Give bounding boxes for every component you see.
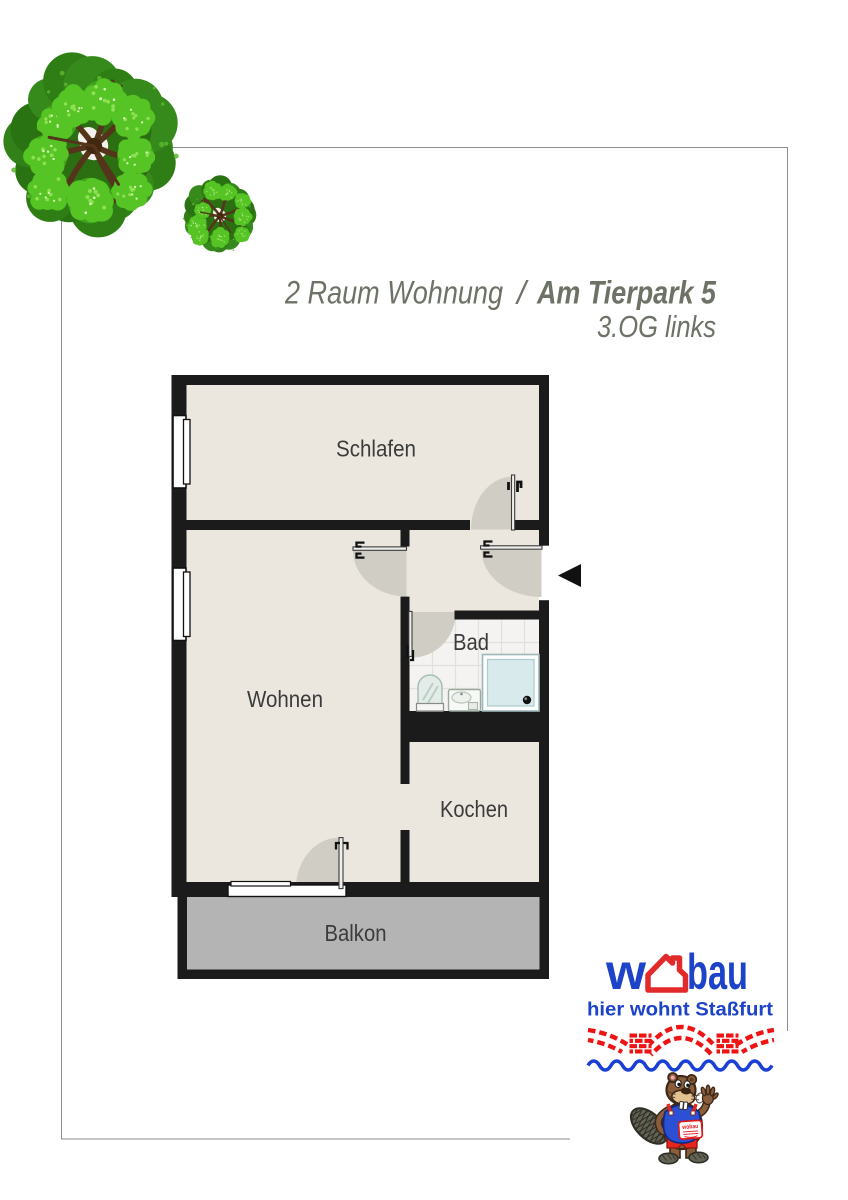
svg-text:/: /: [515, 275, 529, 311]
svg-text:Am Tierpark 5: Am Tierpark 5: [536, 275, 717, 311]
svg-text:bau: bau: [687, 944, 748, 1000]
svg-text:Wohnen: Wohnen: [247, 686, 323, 712]
svg-text:3.OG links: 3.OG links: [597, 309, 716, 344]
svg-text:Kochen: Kochen: [440, 796, 508, 822]
svg-text:Bad: Bad: [453, 629, 489, 655]
svg-text:wobau: wobau: [681, 1124, 699, 1131]
svg-text:hier wohnt Staßfurt: hier wohnt Staßfurt: [587, 999, 774, 1021]
svg-text:w: w: [605, 944, 646, 1000]
svg-text:Balkon: Balkon: [325, 920, 387, 946]
svg-text:Schlafen: Schlafen: [336, 436, 416, 462]
svg-text:2 Raum Wohnung: 2 Raum Wohnung: [284, 275, 503, 311]
